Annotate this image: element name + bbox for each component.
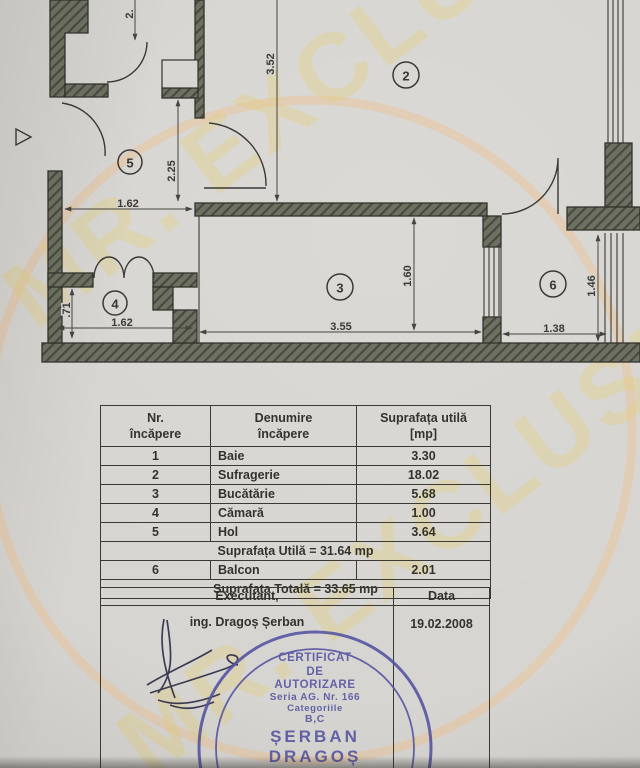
header-nr-incapere: Nr. încăpere — [101, 406, 211, 447]
table-cell-name: Bucătărie — [211, 485, 357, 504]
walls — [42, 0, 640, 362]
table-cell-area: 18.02 — [357, 466, 491, 485]
table-cell-area: 5.68 — [357, 485, 491, 504]
header-denumire: Denumire încăpere — [211, 406, 357, 447]
table-row: 1Baie3.30 — [101, 447, 491, 466]
table-cell-nr: 2 — [101, 466, 211, 485]
dimension-labels: 2.3.522.251.62.711.623.551.601.381.46 — [61, 9, 598, 335]
dimension-label: 1.38 — [543, 323, 564, 335]
data-column: Data 19.02.2008 — [394, 588, 489, 768]
table-body: 1Baie3.302Sufragerie18.023Bucătărie5.684… — [101, 447, 491, 542]
triangle-marker — [16, 129, 31, 145]
table-header-row: Nr. încăpere Denumire încăpere Suprafața… — [101, 406, 491, 447]
table-cell-area: 3.64 — [357, 523, 491, 542]
dimension-label: 1.46 — [586, 275, 598, 296]
table-row: 4Cămară1.00 — [101, 504, 491, 523]
table-row: 3Bucătărie5.68 — [101, 485, 491, 504]
room-circle — [103, 291, 127, 315]
room-circle — [393, 62, 419, 88]
dimension-label: 2. — [124, 9, 136, 18]
table-cell-area: 1.00 — [357, 504, 491, 523]
table-cell-nr: 1 — [101, 447, 211, 466]
data-label: Data — [394, 588, 489, 606]
dimension-label: .71 — [61, 302, 73, 317]
room-circle — [327, 274, 353, 300]
room-circle — [118, 150, 142, 174]
room-circle — [540, 271, 566, 297]
watermark-text: MR. EXCLUSIV — [0, 0, 640, 349]
scanned-floor-plan-document: MR. EXCLUSIV MR. EXCLUSIV — [0, 0, 640, 768]
table-cell-nr: 5 — [101, 523, 211, 542]
room-number: 5 — [126, 156, 133, 171]
dimension-label: 1.60 — [402, 265, 414, 286]
total-usable-row: Suprafața Utilă = 31.64 mp — [101, 542, 491, 561]
dimension-label: 1.62 — [117, 198, 138, 210]
table-cell-nr: 3 — [101, 485, 211, 504]
dimension-label: 1.62 — [111, 317, 132, 329]
table-cell-name: Baie — [211, 447, 357, 466]
executant-section: Executant, ing. Dragoș Șerban Data 19.02… — [100, 587, 490, 768]
dimension-label: 2.25 — [166, 160, 178, 181]
wall-niche — [162, 60, 198, 88]
table-cell-area: 2.01 — [357, 561, 491, 580]
door-arcs — [62, 42, 558, 278]
room-number: 4 — [111, 297, 119, 312]
table-row: 2Sufragerie18.02 — [101, 466, 491, 485]
table-row: 5Hol3.64 — [101, 523, 491, 542]
table-cell-nr: 4 — [101, 504, 211, 523]
header-suprafata: Suprafața utilă [mp] — [357, 406, 491, 447]
table-cell-name: Sufragerie — [211, 466, 357, 485]
room-number: 2 — [402, 69, 409, 84]
executant-label: Executant, — [101, 588, 393, 606]
table-cell-area: 3.30 — [357, 447, 491, 466]
executant-name: ing. Dragoș Șerban — [101, 615, 393, 629]
date-value: 19.02.2008 — [394, 617, 489, 631]
table-cell-name: Cămară — [211, 504, 357, 523]
dimension-label: 3.55 — [330, 321, 351, 333]
table-cell-name: Balcon — [211, 561, 357, 580]
floor-plan: 2.3.522.251.62.711.623.551.601.381.46 25… — [0, 0, 640, 380]
interior-wall-lines — [199, 216, 501, 343]
dimension-lines — [58, 0, 606, 341]
area-table: Nr. încăpere Denumire încăpere Suprafața… — [100, 405, 491, 599]
room-number: 3 — [336, 281, 343, 296]
table-cell-nr: 6 — [101, 561, 211, 580]
room-number: 6 — [549, 278, 556, 293]
table-row-balcon: 6 Balcon 2.01 — [101, 561, 491, 580]
executant-column: Executant, ing. Dragoș Șerban — [101, 588, 394, 768]
table-cell-name: Hol — [211, 523, 357, 542]
dimension-label: 3.52 — [265, 53, 277, 74]
total-usable-text: Suprafața Utilă = 31.64 mp — [101, 542, 491, 561]
window-lines — [484, 0, 623, 343]
room-number-circles: 25436 — [103, 62, 566, 315]
